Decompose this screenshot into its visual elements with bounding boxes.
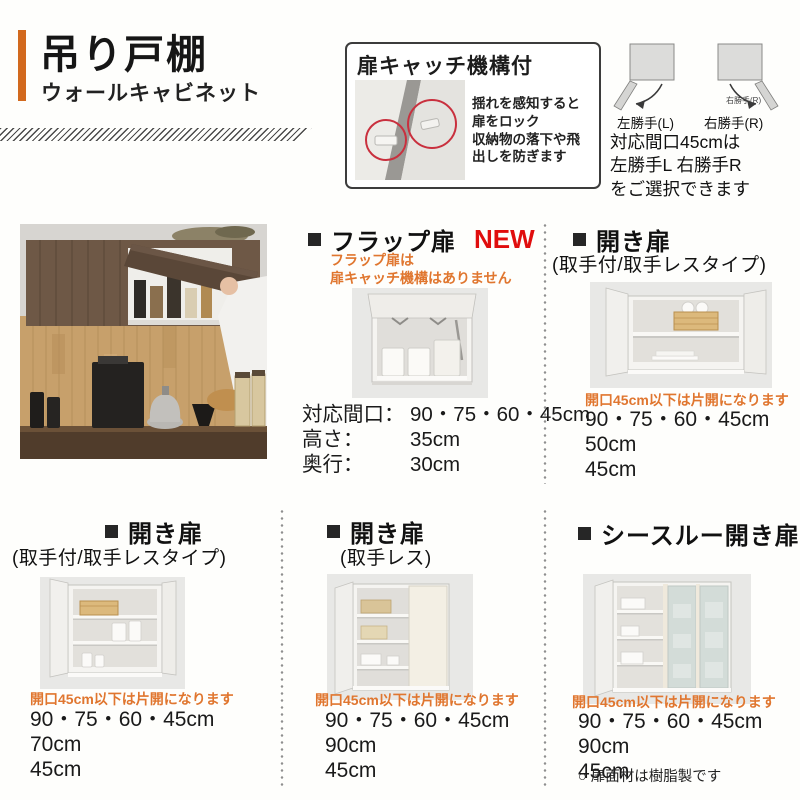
handing-note-line: 対応間口45cmは: [610, 131, 750, 154]
seethrough-note: 開口45cm以下は片開になります: [572, 692, 776, 712]
handing-note-line: をご選択できます: [610, 178, 750, 201]
right-hand-label: 右勝手(R): [704, 112, 763, 132]
page-title: 吊り戸棚: [40, 22, 208, 80]
hinged-bl-subtitle: (取手付/取手レスタイプ): [12, 543, 226, 570]
handleless-specs: 90・75・60・45cm 90cm 45cm: [325, 709, 509, 784]
catch-desc-line: 出しを防ぎます: [472, 148, 580, 166]
handing-note: 対応間口45cmは 左勝手L 右勝手R をご選択できます: [610, 131, 750, 201]
handleless-cabinet-image: [327, 574, 473, 700]
spec-depth: 45cm: [325, 759, 509, 782]
seethrough-title: シースルー開き扉: [601, 516, 800, 551]
spec-value: 90・75・60・45cm: [410, 404, 590, 426]
hinged-mid-note: 開口45cm以下は片開になります: [585, 390, 789, 410]
seethrough-footnote: ○ 扉面材は樹脂製です: [578, 765, 721, 786]
spec-label: 高さ：: [302, 429, 410, 451]
flap-cabinet-image: [352, 288, 488, 398]
square-bullet-icon: [105, 525, 118, 538]
hinged-bl-note: 開口45cm以下は片開になります: [30, 689, 234, 709]
square-bullet-icon: [327, 525, 340, 538]
door-catch-photo: [355, 80, 465, 180]
spec-widths: 90・75・60・45cm: [325, 709, 509, 732]
dotted-divider: [543, 222, 547, 484]
catch-desc-line: 扉をロック: [472, 113, 580, 131]
flap-warning: フラップ扉は 扉キャッチ機構はありません: [330, 251, 512, 287]
left-hand-door-diagram: [612, 40, 692, 112]
spec-height: 90cm: [578, 735, 762, 758]
hinged-mid-cabinet-image: [590, 282, 772, 388]
flap-warning-line: フラップ扉は: [330, 251, 512, 269]
square-bullet-icon: [573, 233, 586, 246]
spec-widths: 90・75・60・45cm: [30, 708, 214, 731]
hinged-mid-specs: 90・75・60・45cm 50cm 45cm: [585, 408, 769, 483]
handleless-note: 開口45cm以下は片開になります: [315, 690, 519, 710]
hinged-bl-cabinet-image: [40, 577, 185, 689]
section-header-seethrough: シースルー開き扉: [578, 516, 800, 551]
catch-desc-line: 収納物の落下や飛: [472, 131, 580, 149]
square-bullet-icon: [578, 527, 591, 540]
spec-label: 対応間口：: [302, 404, 410, 426]
kitchen-lifestyle-photo: [20, 224, 267, 459]
spec-height: 90cm: [325, 734, 509, 757]
spec-widths: 90・75・60・45cm: [578, 710, 762, 733]
spec-widths: 90・75・60・45cm: [585, 408, 769, 431]
dotted-divider: [280, 508, 284, 790]
handleless-subtitle: (取手レス): [340, 543, 432, 570]
door-catch-title: 扉キャッチ機構付: [357, 50, 533, 80]
flap-warning-line: 扉キャッチ機構はありません: [330, 269, 512, 287]
catch-desc-line: 揺れを感知すると: [472, 95, 580, 113]
dotted-divider: [543, 508, 547, 790]
hinged-mid-subtitle: (取手付/取手レスタイプ): [552, 250, 766, 277]
door-catch-description: 揺れを感知すると 扉をロック 収納物の落下や飛 出しを防ぎます: [472, 95, 580, 166]
square-bullet-icon: [308, 233, 321, 246]
spec-value: 30cm: [410, 454, 590, 476]
spec-height: 50cm: [585, 433, 769, 456]
accent-bar: [18, 30, 26, 101]
seethrough-cabinet-image: [583, 574, 751, 704]
left-hand-label: 左勝手(L): [617, 112, 674, 132]
handing-note-line: 左勝手L 右勝手R: [610, 154, 750, 177]
hatch-divider: [0, 128, 312, 141]
spec-depth: 45cm: [585, 458, 769, 481]
spec-height: 70cm: [30, 733, 214, 756]
page-subtitle: ウォールキャビネット: [41, 77, 261, 107]
hinged-bl-specs: 90・75・60・45cm 70cm 45cm: [30, 708, 214, 783]
spec-label: 奥行：: [302, 454, 410, 476]
spec-depth: 45cm: [30, 758, 214, 781]
spec-value: 35cm: [410, 429, 590, 451]
right-hand-small-label: 右勝手(R): [726, 95, 761, 106]
